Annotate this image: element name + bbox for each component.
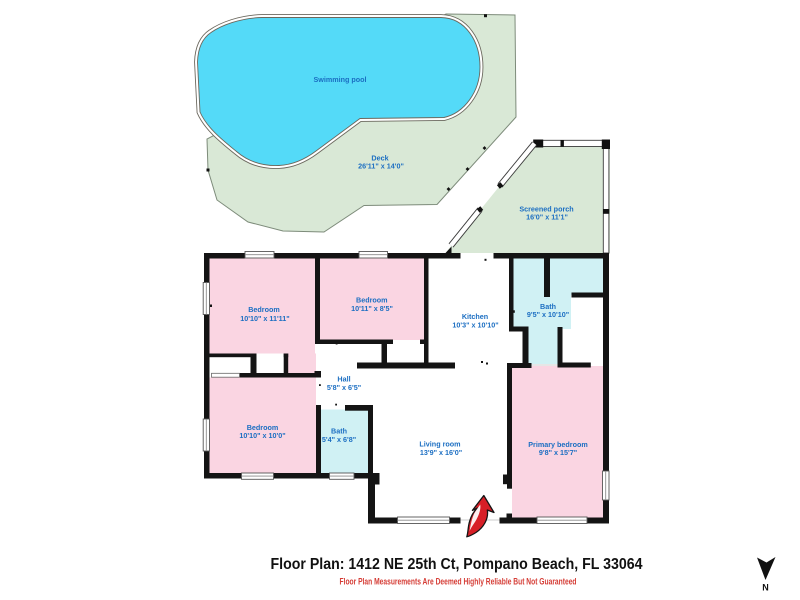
svg-text:Swimming pool: Swimming pool <box>313 75 366 84</box>
svg-text:13'9" x 16'0": 13'9" x 16'0" <box>420 448 462 457</box>
svg-text:Bedroom: Bedroom <box>248 305 280 314</box>
svg-text:5'4" x 6'8": 5'4" x 6'8" <box>322 435 356 444</box>
svg-text:9'8" x 15'7": 9'8" x 15'7" <box>539 448 577 457</box>
svg-text:Floor Plan: 1412 NE 25th Ct, P: Floor Plan: 1412 NE 25th Ct, Pompano Bea… <box>271 556 643 573</box>
svg-text:26'11" x 14'0": 26'11" x 14'0" <box>358 162 404 171</box>
svg-text:5'8" x 6'5": 5'8" x 6'5" <box>327 383 361 392</box>
svg-text:Floor Plan Measurements Are De: Floor Plan Measurements Are Deemed Highl… <box>340 577 577 587</box>
svg-text:10'3" x 10'10": 10'3" x 10'10" <box>452 321 498 330</box>
svg-text:9'5" x 10'10": 9'5" x 10'10" <box>527 310 569 319</box>
svg-text:N: N <box>762 583 769 593</box>
svg-text:16'0" x 11'1": 16'0" x 11'1" <box>526 213 568 222</box>
svg-text:10'11" x 8'5": 10'11" x 8'5" <box>351 304 393 313</box>
svg-text:10'10" x 10'0": 10'10" x 10'0" <box>239 431 285 440</box>
svg-text:10'10" x 11'11": 10'10" x 11'11" <box>240 314 289 323</box>
